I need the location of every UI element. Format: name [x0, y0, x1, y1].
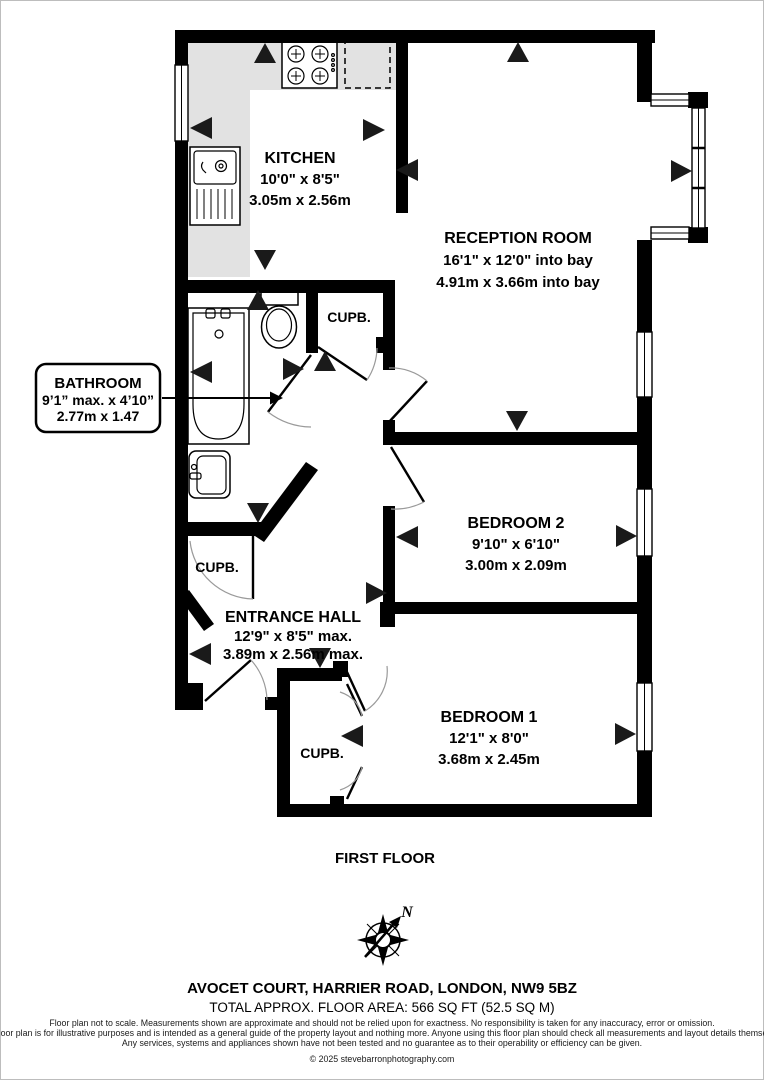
- cupboard-label-1: CUPB.: [327, 309, 371, 325]
- entrance-hall-label: ENTRANCE HALL: [225, 609, 361, 626]
- cupboard-label-3: CUPB.: [300, 745, 344, 761]
- appliance-space-icon: [345, 42, 390, 88]
- bedroom2-window: [637, 489, 652, 556]
- wall-segment: [383, 602, 650, 614]
- wall-segment: [637, 556, 652, 683]
- bathroom-label: BATHROOM: [54, 375, 141, 392]
- bedroom2-size-metric: 3.00m x 2.09m: [465, 557, 567, 574]
- cupboard-label-2: CUPB.: [195, 559, 239, 575]
- wall-segment: [175, 30, 655, 43]
- bedroom1-window: [637, 683, 652, 751]
- bedroom2-label: BEDROOM 2: [468, 515, 565, 532]
- wall-segment: [175, 141, 188, 710]
- wall-segment: [383, 506, 395, 603]
- bedroom1-label: BEDROOM 1: [441, 709, 538, 726]
- bay-corner: [688, 227, 708, 243]
- kitchen-window: [175, 65, 188, 141]
- bathroom-size-imperial: 9’1” max. x 4’10”: [42, 392, 154, 408]
- bedroom1-size-metric: 3.68m x 2.45m: [438, 751, 540, 768]
- door-post: [330, 796, 344, 806]
- basin-icon: [189, 451, 230, 498]
- wall-segment: [175, 522, 268, 536]
- door-post: [333, 661, 348, 677]
- wall-segment: [637, 240, 652, 332]
- disclaimer-line-3: Any services, systems and appliances sho…: [122, 1038, 642, 1048]
- floor-plan-page: KITCHEN 10'0" x 8'5" 3.05m x 2.56m RECEP…: [0, 0, 764, 1080]
- copyright-text: © 2025 stevebarronphotography.com: [310, 1054, 455, 1064]
- kitchen-size-imperial: 10'0" x 8'5": [260, 171, 340, 188]
- bathroom-size-metric: 2.77m x 1.47: [57, 408, 140, 424]
- toilet-icon: [261, 288, 298, 348]
- floor-plan-drawing: KITCHEN 10'0" x 8'5" 3.05m x 2.56m RECEP…: [0, 0, 764, 1080]
- reception-window: [637, 332, 652, 397]
- reception-size-metric: 4.91m x 3.66m into bay: [436, 274, 600, 291]
- wall-segment: [277, 668, 342, 681]
- disclaimer-line-2: The floor plan is for illustrative purpo…: [0, 1028, 764, 1038]
- wall-segment: [383, 280, 395, 370]
- entrance-hall-size-metric: 3.89m x 2.56m max.: [223, 646, 363, 663]
- property-address: AVOCET COURT, HARRIER ROAD, LONDON, NW9 …: [187, 980, 577, 997]
- bathtub-icon: [188, 308, 249, 444]
- reception-label: RECEPTION ROOM: [444, 230, 592, 247]
- hob-icon: [282, 41, 337, 88]
- reception-size-imperial: 16'1" x 12'0" into bay: [443, 252, 593, 269]
- wall-segment: [175, 683, 203, 710]
- wall-segment: [306, 293, 318, 353]
- bay-corner: [688, 92, 708, 108]
- wall-segment: [175, 30, 188, 65]
- floor-label: FIRST FLOOR: [335, 850, 435, 867]
- floor-area-text: TOTAL APPROX. FLOOR AREA: 566 SQ FT (52.…: [209, 1000, 554, 1015]
- wall-segment: [175, 280, 385, 293]
- bedroom2-size-imperial: 9'10" x 6'10": [472, 536, 560, 553]
- bedroom1-size-imperial: 12'1" x 8'0": [449, 730, 529, 747]
- entrance-hall-size-imperial: 12'9" x 8'5" max.: [234, 628, 352, 645]
- compass-north-label: N: [400, 904, 414, 921]
- kitchen-label: KITCHEN: [264, 150, 335, 167]
- wall-segment: [637, 30, 652, 102]
- door-post: [380, 602, 395, 627]
- disclaimer-line-1: Floor plan not to scale. Measurements sh…: [49, 1018, 714, 1028]
- kitchen-size-metric: 3.05m x 2.56m: [249, 192, 351, 209]
- kitchen-sink-icon: [190, 147, 240, 225]
- wall-segment: [383, 432, 650, 445]
- wall-segment: [396, 43, 408, 213]
